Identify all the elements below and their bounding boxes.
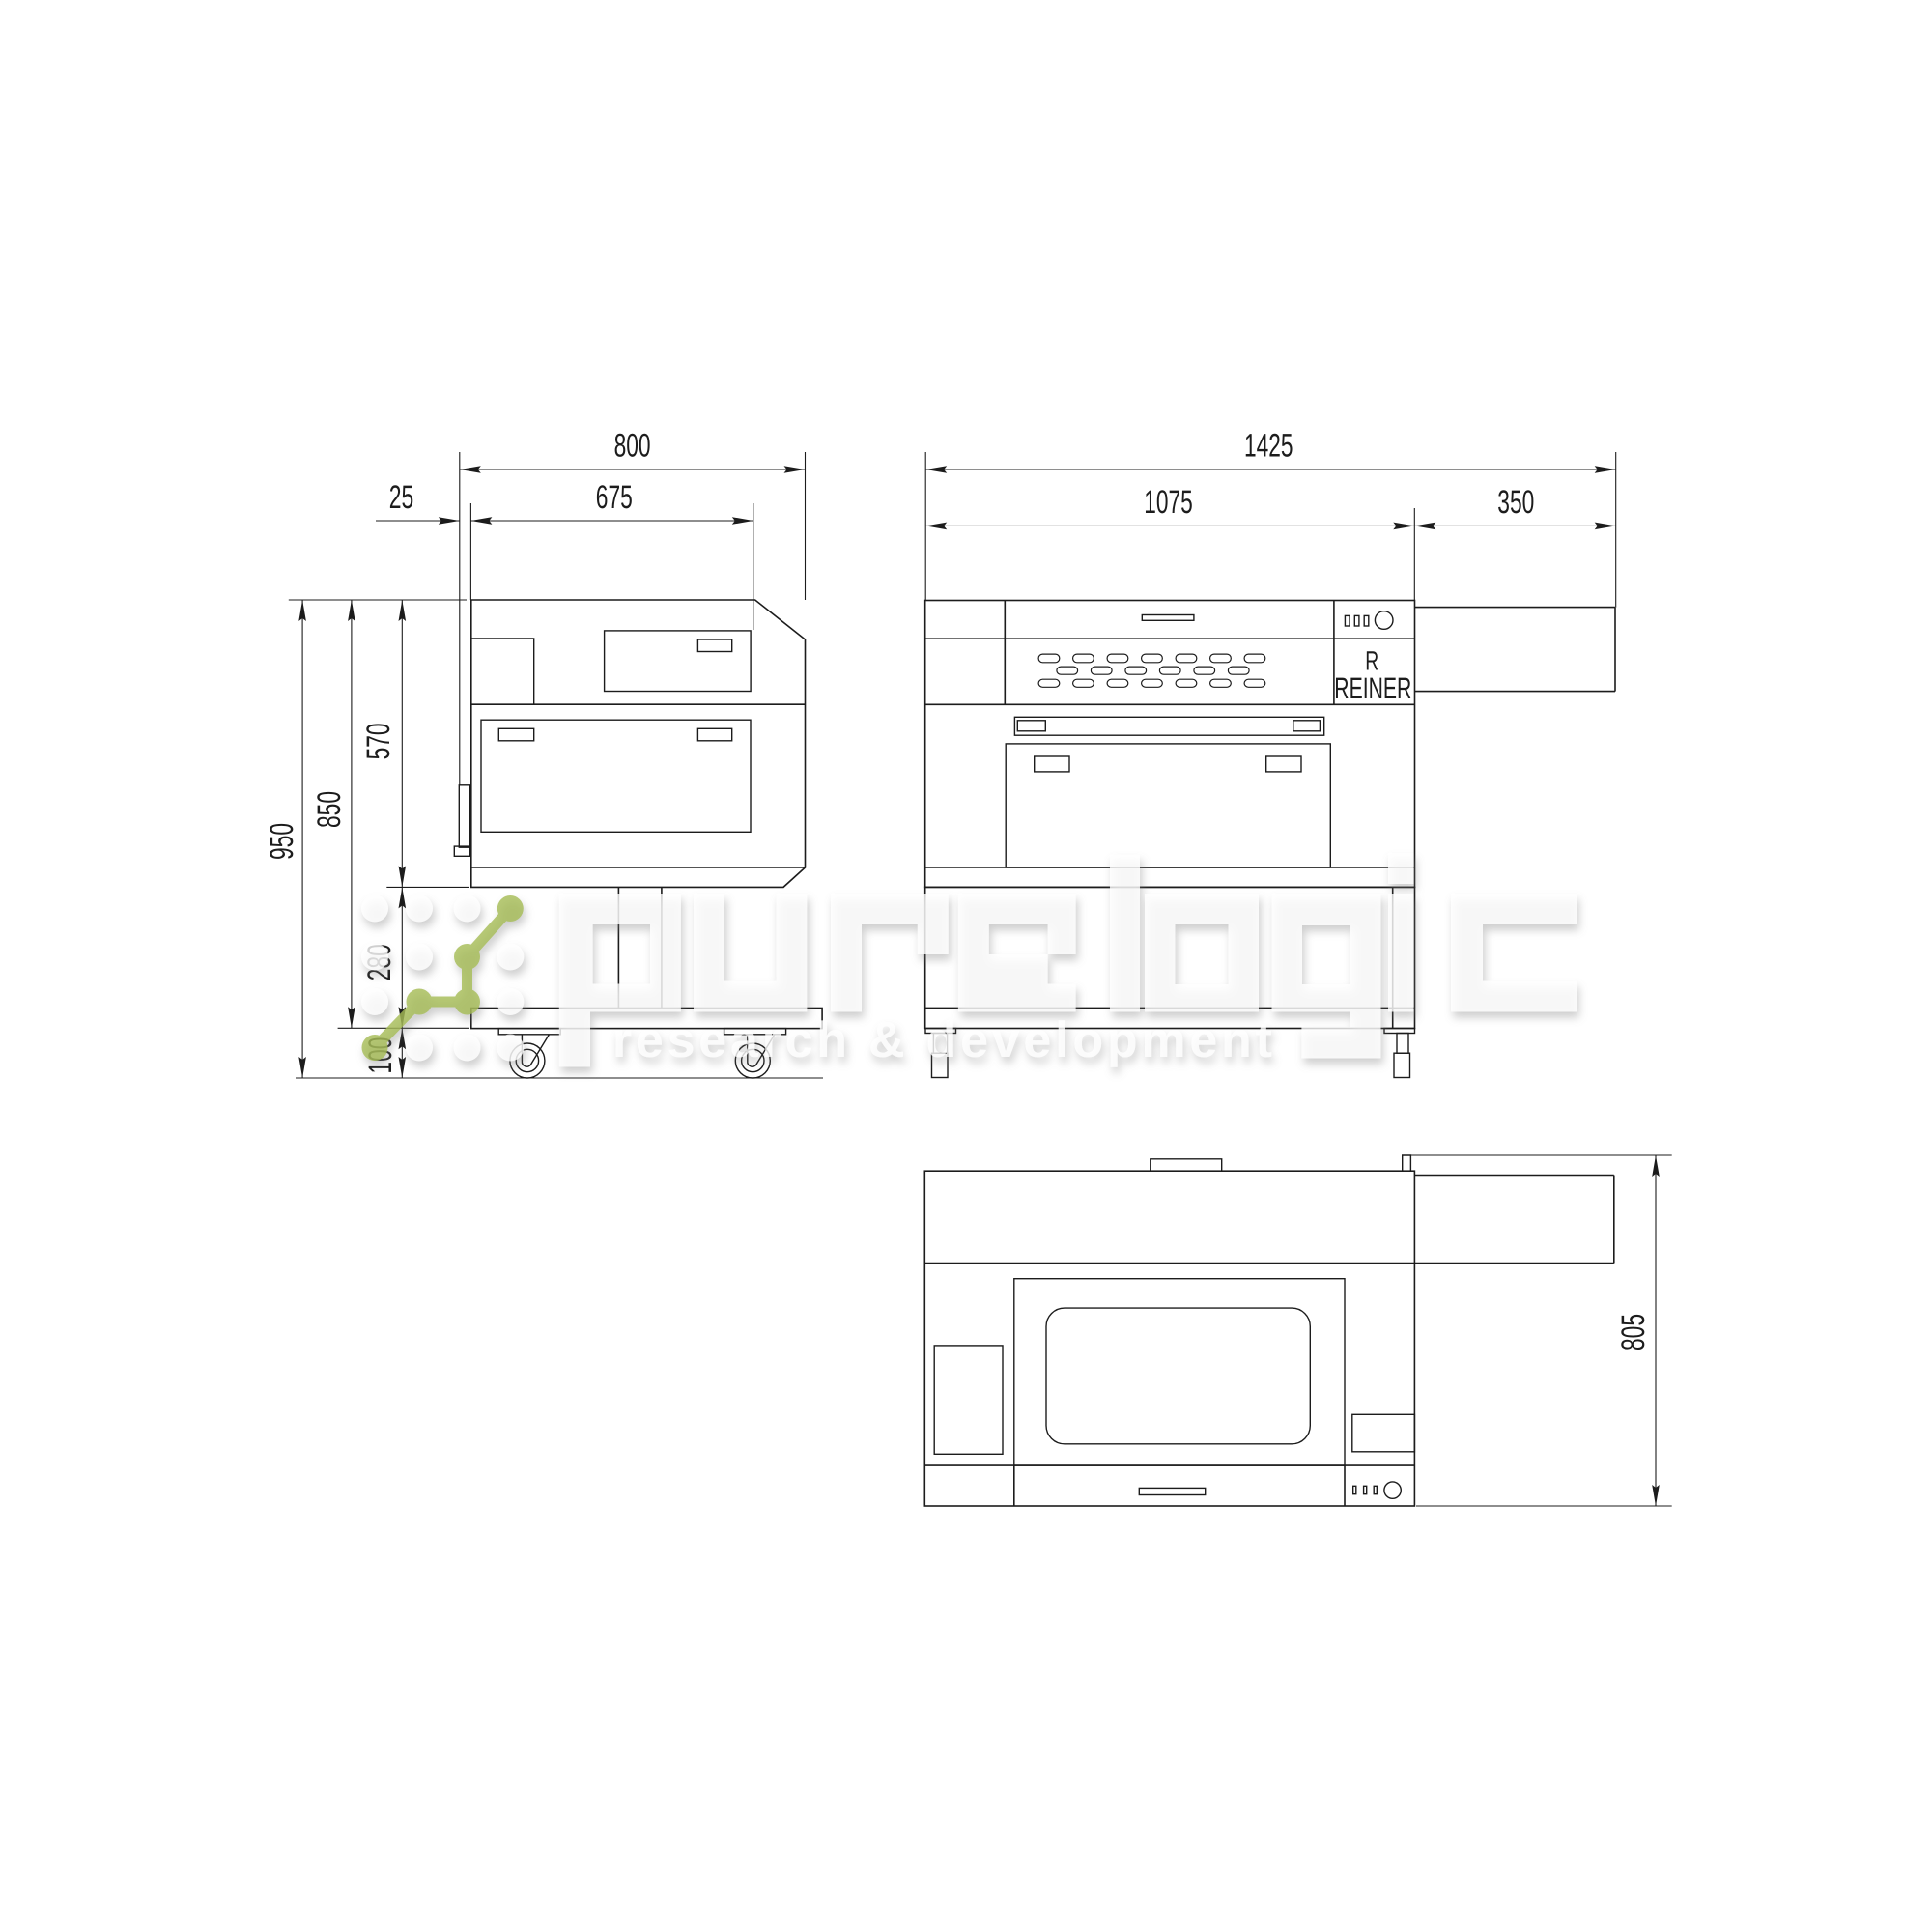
svg-text:800: 800 [614, 428, 651, 465]
svg-text:570: 570 [360, 723, 397, 759]
svg-text:850: 850 [311, 791, 348, 828]
svg-text:1425: 1425 [1244, 428, 1293, 465]
svg-text:25: 25 [389, 479, 414, 516]
svg-text:REINER: REINER [1334, 671, 1411, 705]
svg-text:1075: 1075 [1144, 484, 1193, 521]
svg-text:950: 950 [264, 823, 300, 860]
svg-text:research & development: research & development [612, 1012, 1272, 1068]
svg-text:675: 675 [596, 479, 633, 516]
svg-text:350: 350 [1497, 484, 1534, 521]
svg-text:805: 805 [1615, 1314, 1652, 1350]
